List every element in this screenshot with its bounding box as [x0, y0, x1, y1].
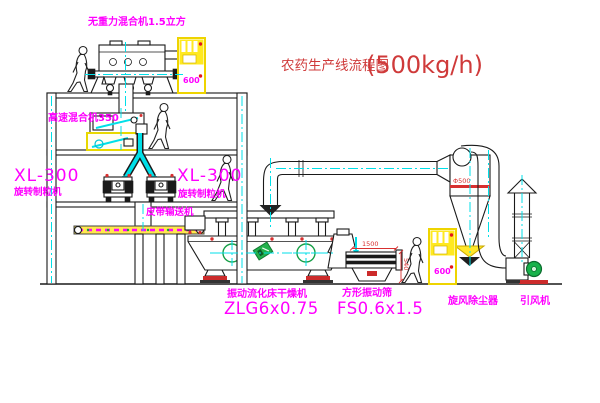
label-belt-conveyor: 皮带输送机 [145, 206, 194, 218]
person-roof [68, 47, 89, 92]
belt-conveyor [74, 226, 204, 284]
granulator-right [146, 174, 176, 202]
label-granulator-right-name: 旋转制粒机 [177, 188, 226, 200]
dryer-springs [216, 218, 328, 236]
cabinet-roof-panel-text: 600 [183, 76, 200, 85]
label-fan: 引风机 [520, 294, 550, 307]
granulator-left [103, 174, 133, 202]
label-high-speed-mixer: 高速混合机350 [48, 111, 119, 124]
label-granulator-left-model: XL-300 [14, 166, 79, 186]
label-dryer-model: ZLG6x0.75 [224, 299, 319, 318]
person-floor2 [149, 104, 170, 149]
cyclone-outlet [453, 148, 471, 166]
dryer-feed-inlet [185, 216, 205, 230]
floor2-slab [47, 150, 247, 155]
cyclone-diameter-dim: Φ500 [453, 177, 471, 185]
induced-draft-fan [506, 258, 548, 284]
cad-flow-diagram: 600 [0, 0, 600, 403]
label-gravity-mixer: 无重力混合机1.5立方 [87, 15, 186, 28]
diagram-capacity: (500kg/h) [366, 51, 483, 79]
cabinet-ground-panel-text: 600 [434, 267, 451, 276]
fluid-bed-dryer [185, 211, 346, 283]
label-cyclone: 旋风除尘器 [447, 294, 499, 307]
label-sieve-name: 方形振动筛 [342, 286, 392, 299]
label-sieve-model: FS0.6x1.5 [337, 299, 423, 318]
sieve-length-dim: 1500 [362, 240, 379, 248]
label-granulator-left-name: 旋转制粒机 [13, 186, 62, 198]
label-granulator-right-model: XL-300 [177, 166, 242, 186]
vibrating-sieve: 1500 540 [328, 229, 410, 283]
